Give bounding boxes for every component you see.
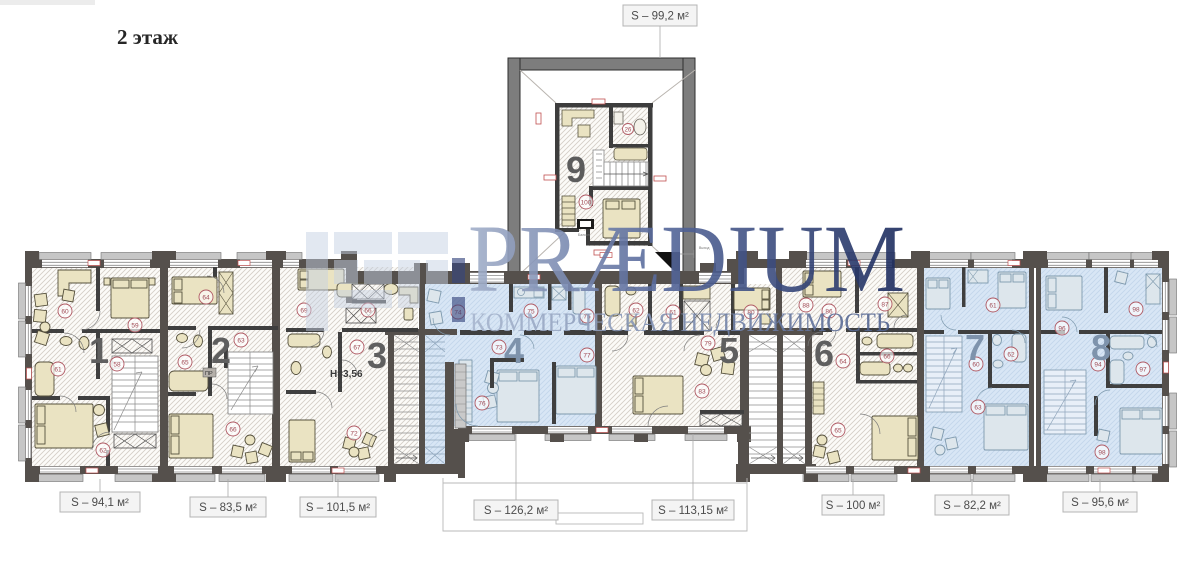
svg-text:9: 9 — [566, 149, 586, 190]
svg-text:7: 7 — [965, 327, 985, 368]
svg-text:77: 77 — [583, 353, 591, 360]
svg-text:63: 63 — [974, 405, 982, 412]
svg-text:64: 64 — [839, 359, 847, 366]
svg-text:72: 72 — [350, 431, 358, 438]
svg-text:98: 98 — [1098, 450, 1106, 457]
svg-text:PRÆDIUM: PRÆDIUM — [468, 205, 905, 312]
svg-text:97: 97 — [1139, 367, 1147, 374]
svg-text:65: 65 — [181, 360, 189, 367]
svg-text:S – 82,2 м²: S – 82,2 м² — [943, 500, 1001, 512]
svg-text:79: 79 — [704, 341, 712, 348]
svg-text:S – 83,5 м²: S – 83,5 м² — [199, 502, 257, 514]
svg-text:62: 62 — [99, 448, 107, 455]
svg-text:1: 1 — [89, 330, 109, 371]
svg-text:H=3,56: H=3,56 — [330, 369, 363, 380]
svg-text:S – 99,2 м²: S – 99,2 м² — [631, 11, 689, 23]
svg-text:58: 58 — [113, 362, 121, 369]
svg-text:S – 126,2 м²: S – 126,2 м² — [484, 505, 548, 517]
svg-text:66: 66 — [229, 427, 237, 434]
svg-text:65: 65 — [834, 428, 842, 435]
svg-text:60: 60 — [61, 309, 69, 316]
svg-text:S – 95,6 м²: S – 95,6 м² — [1071, 497, 1129, 509]
svg-text:26: 26 — [625, 128, 632, 134]
svg-text:62: 62 — [1007, 352, 1015, 359]
svg-text:63: 63 — [237, 338, 245, 345]
svg-text:8: 8 — [1091, 327, 1111, 368]
svg-text:76: 76 — [478, 401, 486, 408]
svg-text:S – 94,1 м²: S – 94,1 м² — [71, 497, 129, 509]
svg-text:73: 73 — [495, 345, 503, 352]
svg-text:67: 67 — [353, 345, 361, 352]
svg-text:КОММЕРЧЕСКАЯ НЕДВИЖИМОСТЬ: КОММЕРЧЕСКАЯ НЕДВИЖИМОСТЬ — [470, 308, 890, 337]
svg-text:64: 64 — [202, 295, 210, 302]
svg-text:S – 101,5 м²: S – 101,5 м² — [306, 502, 370, 514]
svg-text:66: 66 — [364, 308, 372, 315]
svg-text:S – 113,15 м²: S – 113,15 м² — [658, 505, 728, 517]
svg-text:S – 100 м²: S – 100 м² — [826, 500, 881, 512]
svg-text:2: 2 — [211, 330, 231, 371]
svg-text:61: 61 — [54, 367, 62, 374]
svg-text:2 этаж: 2 этаж — [117, 25, 179, 49]
svg-text:3: 3 — [367, 335, 387, 376]
svg-text:59: 59 — [131, 323, 139, 330]
svg-text:83: 83 — [698, 389, 706, 396]
svg-text:98: 98 — [1132, 307, 1140, 314]
svg-text:6: 6 — [814, 333, 834, 374]
svg-text:66: 66 — [883, 354, 891, 361]
svg-text:ПР: ПР — [205, 371, 213, 377]
svg-text:96: 96 — [1058, 326, 1066, 333]
svg-text:61: 61 — [989, 303, 997, 310]
